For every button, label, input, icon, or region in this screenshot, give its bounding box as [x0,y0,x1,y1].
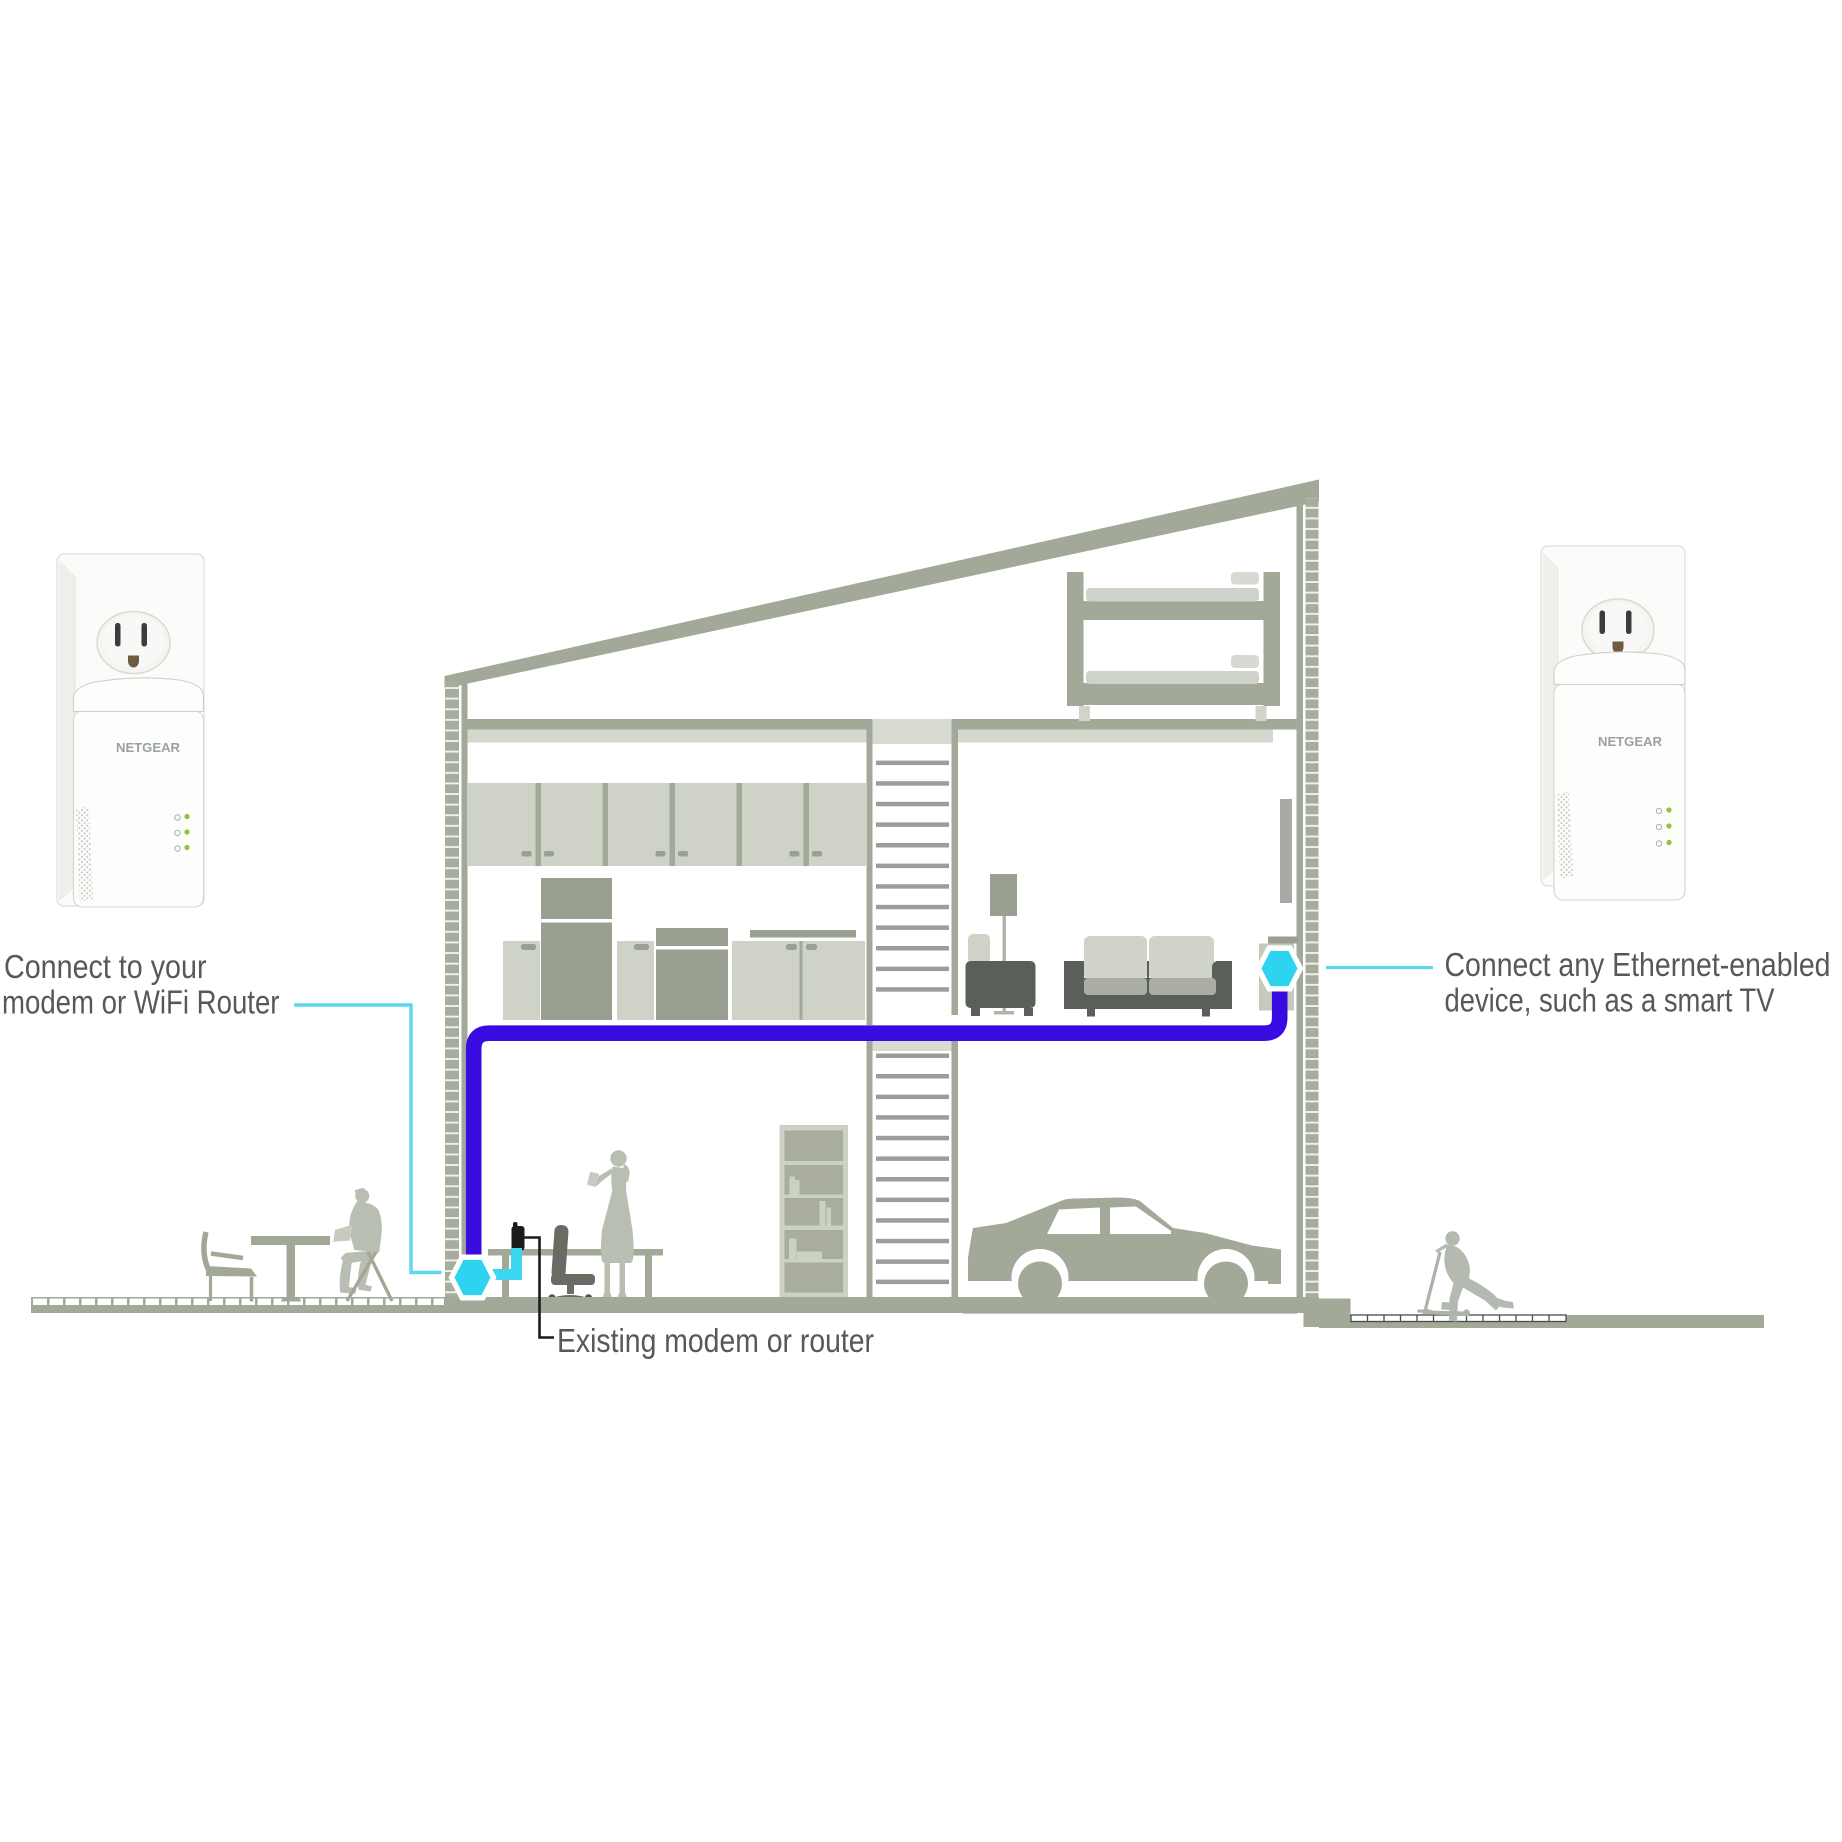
svg-text:NETGEAR: NETGEAR [1598,735,1662,749]
svg-text:modem or WiFi Router: modem or WiFi Router [2,984,280,1021]
svg-text:Existing modem or router: Existing modem or router [557,1322,874,1359]
svg-text:device, such as a smart TV: device, such as a smart TV [1445,982,1775,1019]
svg-text:NETGEAR: NETGEAR [116,741,180,755]
svg-text:Connect any Ethernet-enabled: Connect any Ethernet-enabled [1445,946,1831,983]
svg-text:Connect to your: Connect to your [4,948,207,985]
